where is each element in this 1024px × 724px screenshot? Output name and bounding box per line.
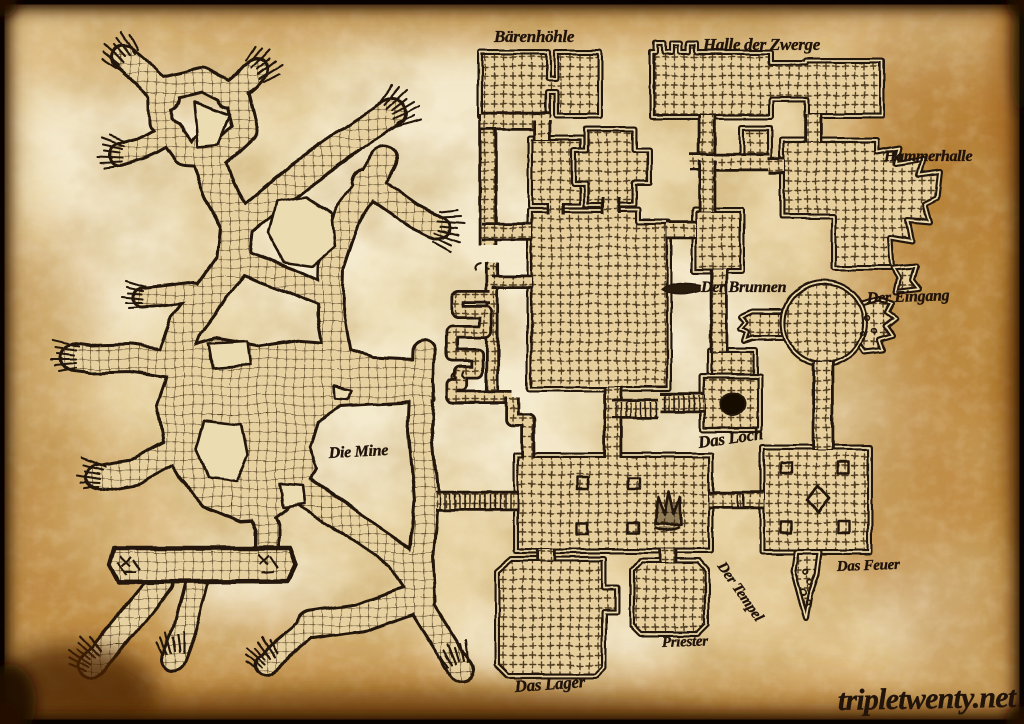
svg-text:Der Brunnen: Der Brunnen [700,279,787,296]
svg-text:Priester: Priester [662,633,709,651]
svg-text:Der Eingang: Der Eingang [866,287,950,307]
svg-text:Hammerhalle: Hammerhalle [883,148,972,165]
svg-text:Die Mine: Die Mine [327,442,388,462]
svg-text:Halle der Zwerge: Halle der Zwerge [702,35,821,54]
svg-text:Bärenhöhle: Bärenhöhle [493,27,575,46]
svg-text:Das Feuer: Das Feuer [836,557,901,575]
svg-text:tripletwenty.net: tripletwenty.net [838,681,1019,717]
